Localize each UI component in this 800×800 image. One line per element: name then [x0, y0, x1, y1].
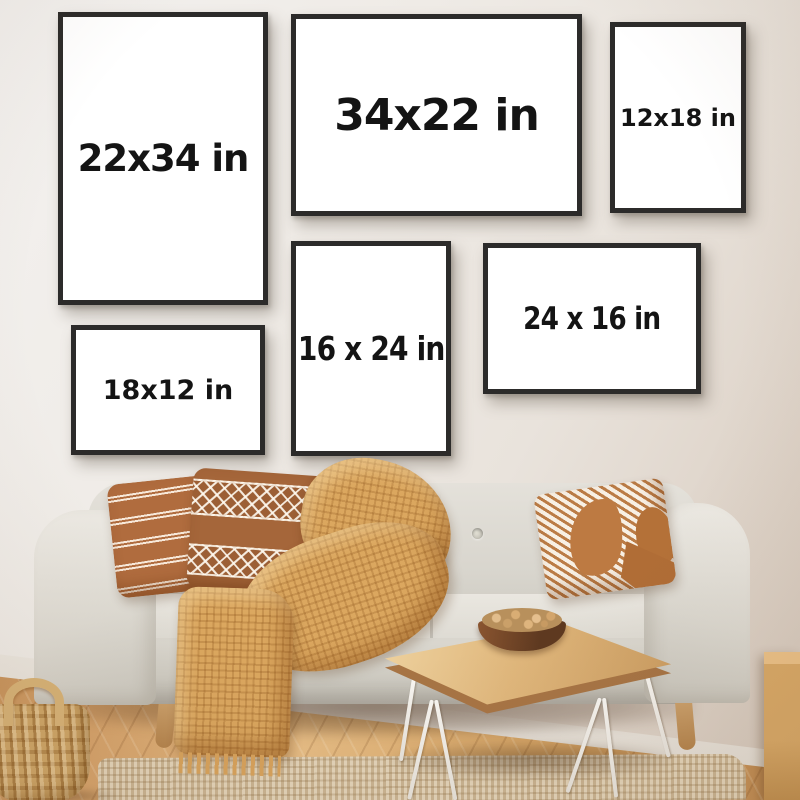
frame-12x18: 12x18 in — [610, 22, 746, 213]
sofa-tuft-button — [472, 528, 483, 539]
hairpin-table-leg — [399, 678, 416, 762]
frame-34x22: 34x22 in — [291, 14, 582, 216]
hairpin-table-leg — [566, 697, 602, 793]
frame-size-label: 18x12 in — [103, 375, 233, 406]
frame-18x12: 18x12 in — [71, 325, 265, 455]
frame-size-label: 24 x 16 in — [523, 301, 660, 337]
nut-bowl — [478, 608, 566, 654]
knit-blanket-front-drape — [173, 586, 295, 758]
basket-handle — [4, 678, 64, 726]
living-room-frame-mockup: 22x34 in 34x22 in 12x18 in 16 x 24 in 24… — [0, 0, 800, 800]
frame-22x34: 22x34 in — [58, 12, 268, 305]
wood-block-stool — [764, 652, 800, 800]
pillow-leaf-motif — [566, 494, 628, 579]
walnuts — [482, 608, 562, 632]
frame-size-label: 16 x 24 in — [298, 329, 445, 368]
frame-size-label: 22x34 in — [78, 137, 249, 180]
frame-size-label: 34x22 in — [334, 90, 539, 141]
frame-size-label: 12x18 in — [620, 104, 736, 132]
frame-24x16: 24 x 16 in — [483, 243, 701, 394]
frame-16x24: 16 x 24 in — [291, 241, 451, 456]
wicker-basket — [0, 704, 90, 800]
hairpin-table-leg — [644, 671, 671, 757]
hairpin-table-leg — [434, 700, 457, 800]
hairpin-table-leg — [407, 700, 434, 800]
diagonal-stripe-pillow — [533, 477, 676, 600]
hairpin-table-leg — [602, 698, 618, 798]
